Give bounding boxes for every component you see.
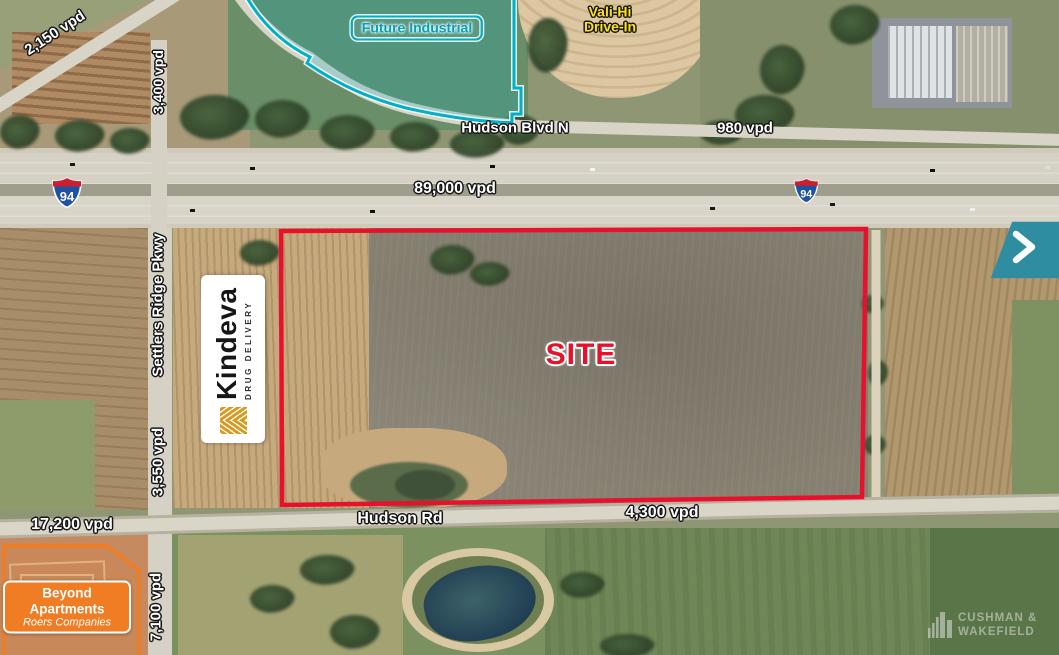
- road-label-hudson-rd: Hudson Rd: [357, 510, 442, 528]
- aerial-site-map: 94 94 2,150 vpd 3,400 vpd Future Industr…: [0, 0, 1059, 655]
- vali-hi-line1: Vali-Hi: [584, 5, 636, 20]
- traffic-count-label: 3,400 vpd: [150, 50, 166, 114]
- vali-hi-line2: Drive-In: [584, 20, 636, 35]
- cushman-wakefield-line2: WAKEFIELD: [958, 625, 1037, 639]
- vali-hi-drive-in-label: Vali-Hi Drive-In: [584, 5, 636, 36]
- traffic-count-label: 3,550 vpd: [150, 428, 167, 496]
- traffic-count-label: 89,000 vpd: [414, 180, 496, 198]
- kindeva-tagline: DRUG DELIVERY: [244, 301, 253, 400]
- site-label: SITE: [546, 338, 617, 372]
- kindeva-sign: Kindeva DRUG DELIVERY: [201, 275, 265, 443]
- traffic-count-label: 980 vpd: [717, 120, 773, 137]
- interstate-94-shield: 94: [53, 178, 81, 208]
- kindeva-wordmark: Kindeva: [213, 288, 241, 400]
- kindeva-logo-icon: [220, 407, 247, 434]
- road-label-hudson-blvd-n: Hudson Blvd N: [461, 120, 569, 137]
- cushman-wakefield-watermark: CUSHMAN & WAKEFIELD: [928, 610, 1037, 640]
- road-label-settlers-ridge-pkwy: Settlers Ridge Pkwy: [150, 233, 167, 376]
- cushman-wakefield-icon: [928, 610, 952, 640]
- chevron-right-icon: [1004, 227, 1044, 267]
- route-number: 94: [800, 189, 812, 201]
- beyond-apartments-badge: Beyond Apartments Roers Companies: [3, 580, 131, 633]
- cushman-wakefield-line1: CUSHMAN &: [958, 611, 1037, 625]
- route-number: 94: [60, 189, 75, 204]
- beyond-apartments-company: Roers Companies: [9, 616, 125, 628]
- traffic-count-label: 7,100 vpd: [148, 573, 165, 641]
- future-industrial-label: Future Industrial: [351, 16, 483, 41]
- beyond-apartments-title: Beyond Apartments: [9, 585, 125, 616]
- interstate-94-shield: 94: [795, 179, 818, 203]
- traffic-count-label: 17,200 vpd: [31, 516, 113, 534]
- traffic-count-label: 4,300 vpd: [626, 504, 699, 522]
